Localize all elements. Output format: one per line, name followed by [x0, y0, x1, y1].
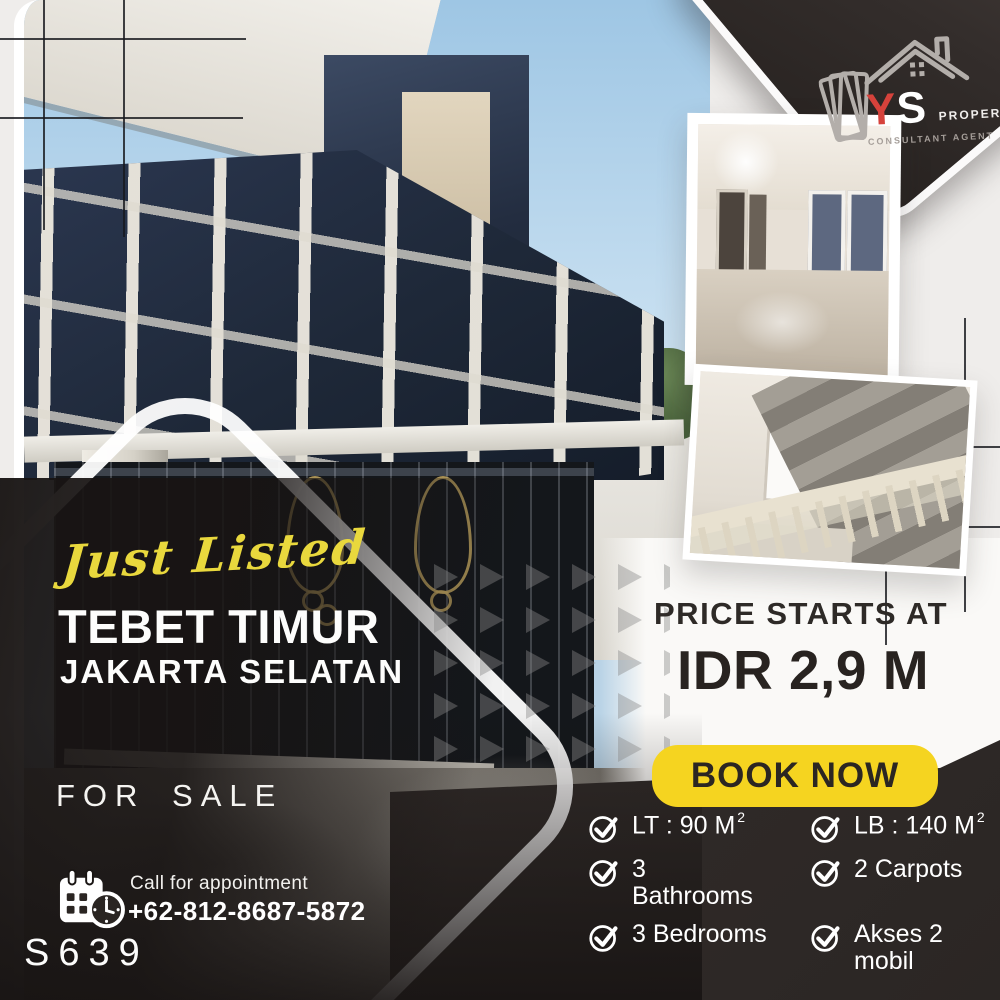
brand-property-label: PROPERTY [938, 105, 1000, 123]
check-icon [588, 856, 621, 889]
check-icon [588, 921, 621, 954]
feature-item-bathrooms: 3 Bathrooms [588, 856, 810, 910]
feature-item-lt: LT : 90 M2 [588, 812, 810, 845]
for-sale-label: FOR SALE [56, 778, 283, 814]
feature-item-lb: LB : 140 M2 [810, 812, 990, 845]
check-icon [588, 812, 621, 845]
location-subtitle: JAKARTA SELATAN [60, 653, 404, 691]
contact-phone[interactable]: +62-812-8687-5872 [128, 896, 366, 927]
book-now-button[interactable]: BOOK NOW [652, 745, 938, 807]
feature-text: LT : 90 M2 [632, 812, 743, 839]
brand-y: Y [865, 84, 898, 135]
location-title: TEBET TIMUR [58, 599, 379, 654]
interior-photo-staircase [682, 364, 977, 576]
feature-text: LB : 140 M2 [854, 812, 983, 839]
feature-item-akses: Akses 2 mobil [810, 921, 990, 975]
decor-line [43, 0, 45, 230]
check-icon [810, 921, 843, 954]
brand-logo: YS PROPERTY CONSULTANT AGENT [833, 33, 1000, 172]
feature-text: 3 Bathrooms [632, 856, 768, 910]
brand-s: S [895, 83, 928, 134]
feature-text: 3 Bedrooms [632, 921, 767, 948]
brand-initials: YS [865, 86, 928, 133]
feature-list: LT : 90 M2 LB : 140 M2 3 Bathrooms 2 Car… [588, 812, 993, 975]
check-icon [810, 812, 843, 845]
check-icon [810, 856, 843, 889]
calendar-clock-icon [56, 868, 126, 932]
feature-text: Akses 2 mobil [854, 921, 990, 975]
contact-label: Call for appointment [130, 873, 308, 895]
feature-item-bedrooms: 3 Bedrooms [588, 921, 810, 975]
decor-line [0, 117, 243, 119]
price-value: IDR 2,9 M [658, 638, 948, 702]
feature-item-carpots: 2 Carpots [810, 856, 990, 910]
listing-code: S639 [24, 932, 149, 975]
feature-text: 2 Carpots [854, 856, 962, 883]
triangle-pattern-decoration [428, 556, 670, 772]
flyer-canvas: YS PROPERTY CONSULTANT AGENT Just Listed… [0, 0, 1000, 1000]
price-label: PRICE STARTS AT [654, 596, 948, 632]
decor-line [0, 38, 246, 40]
